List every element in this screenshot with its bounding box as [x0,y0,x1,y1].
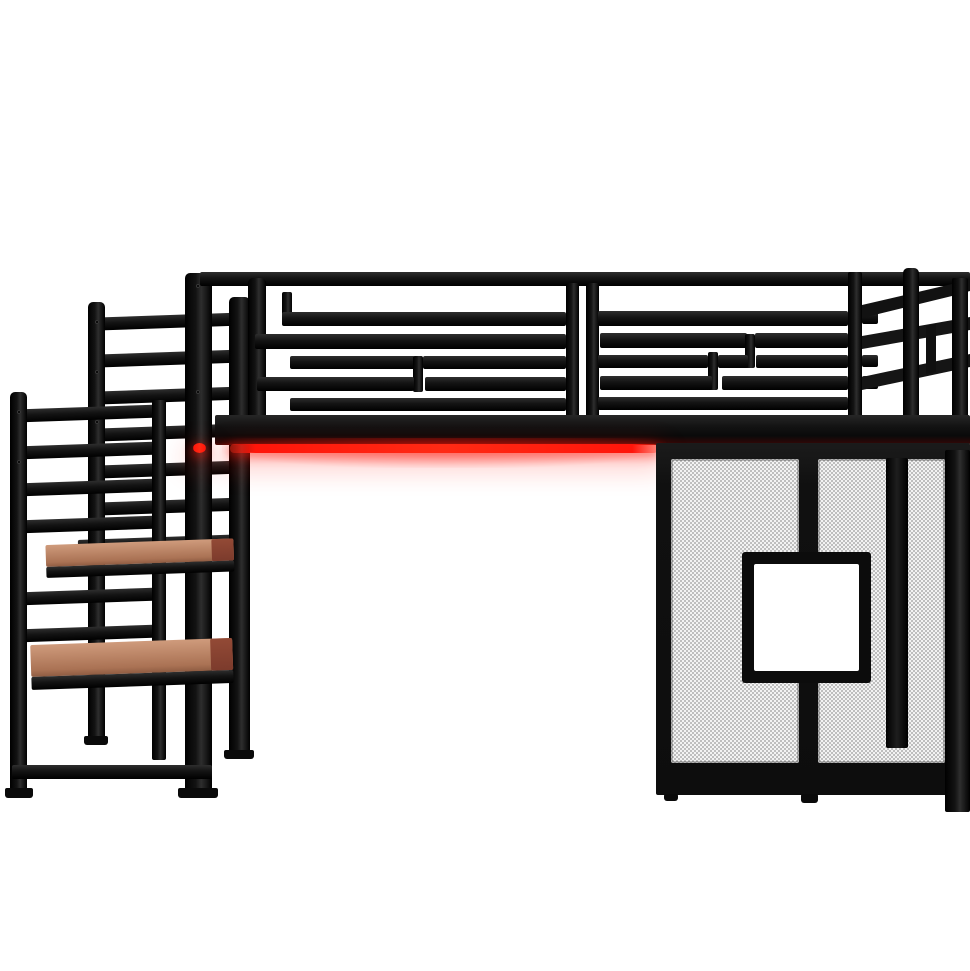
led-glow [222,438,666,468]
led-end-dot [193,443,206,453]
mesh-panel-assembly [656,443,970,795]
mesh-foot [664,794,678,801]
mesh-accent-bar [886,458,908,748]
mesh-foot [801,794,818,803]
product-image [0,0,970,971]
mesh-window-opening [754,564,859,671]
led-strip [230,444,658,453]
mesh-window-frame [742,552,871,683]
right-rear-leg [945,450,970,812]
